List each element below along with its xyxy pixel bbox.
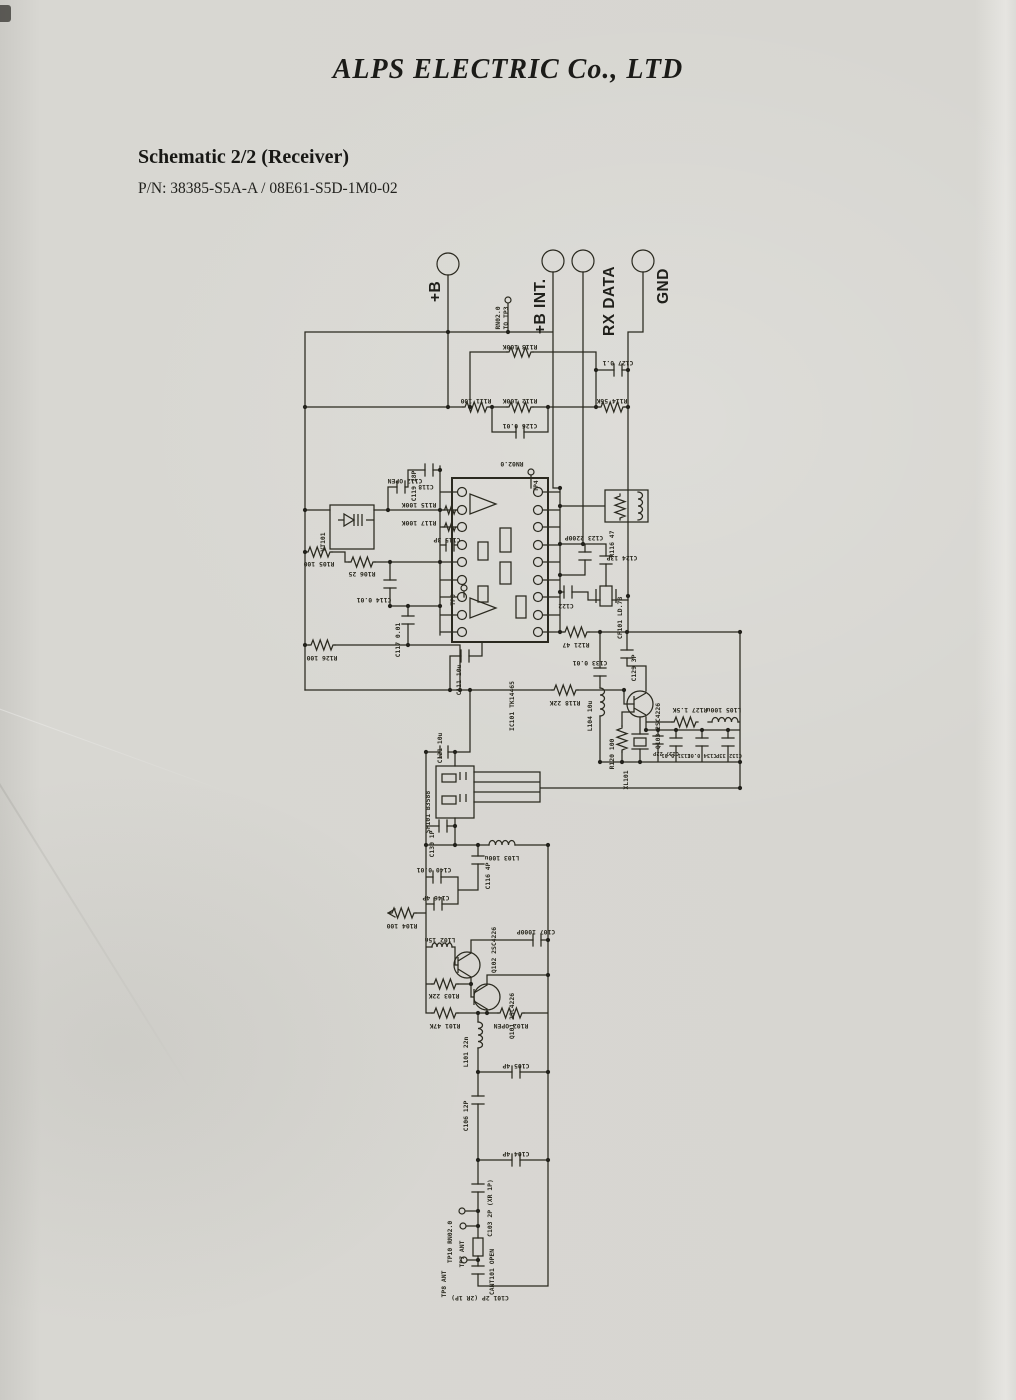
- component-label: L105 100u: [707, 706, 742, 714]
- connector-pads: [437, 250, 654, 275]
- component-label: R115 100K: [402, 501, 437, 509]
- filter-cf101: [596, 586, 616, 606]
- connector-pad-gnd: [632, 250, 654, 272]
- testpoint-label: TP8 ANT: [440, 1270, 448, 1297]
- component-label: C140 0.01: [417, 866, 452, 874]
- component-label: R104 100: [386, 922, 417, 930]
- component-label: R118 22K: [549, 699, 580, 707]
- component-label: L101 22n: [462, 1036, 470, 1067]
- component-label: C103 2P (XR 1P): [486, 1179, 494, 1237]
- connector-pad-rx-data: [572, 250, 594, 272]
- component-label: R112 100K: [503, 397, 538, 405]
- crystal-label: XL101: [622, 770, 630, 789]
- junction-dots: [303, 330, 742, 1262]
- testpoint-pads: [459, 297, 534, 1263]
- component-label: R101 47K: [429, 1022, 460, 1030]
- component-label: C114 0.01: [357, 596, 392, 604]
- connector-pad-b-int: [542, 250, 564, 272]
- crystal-xl101: [634, 738, 646, 746]
- component-label: R116 47: [608, 530, 616, 557]
- component-label: C115 3P: [433, 536, 460, 544]
- wires-ic-left: [305, 466, 531, 690]
- component-label: C111 10u: [455, 664, 463, 695]
- ic-label: IC101 TK14465: [508, 681, 516, 731]
- component-label: C134 0.01: [687, 752, 716, 758]
- component-label: C105 4P: [502, 1062, 529, 1070]
- component-label: C130 1P: [428, 830, 436, 857]
- component-label: C121 10u: [436, 732, 444, 763]
- component-label: C104 4P: [502, 1150, 529, 1158]
- resistor-zigzags: [306, 347, 698, 1018]
- wires-top: [305, 272, 643, 690]
- component-label: L104 10u: [586, 700, 594, 731]
- component-label: R103 22K: [428, 992, 459, 1000]
- component-label: VT101: [319, 532, 327, 551]
- connector-label-b-int: +B INT.: [532, 278, 549, 334]
- component-label: C146 4P: [422, 894, 449, 902]
- antenna-cant101: [473, 1238, 483, 1256]
- testpoint-label: TP7 ANT: [458, 1240, 466, 1267]
- component-label: C129 3P: [630, 654, 638, 681]
- component-label: R105 100: [303, 560, 334, 568]
- component-label: C127 0.1: [602, 359, 633, 367]
- ic101-body: [452, 478, 548, 642]
- filter-sf101: [436, 766, 474, 818]
- component-label: C107 1000P: [517, 928, 556, 936]
- component-label: L102 15n: [424, 936, 455, 944]
- testpoint-label: TP10 RN02.0: [446, 1221, 454, 1263]
- transistor-q102: [454, 952, 480, 978]
- component-label: CF101 LD.7B: [616, 597, 624, 639]
- note-label: RN02.0: [494, 306, 502, 329]
- testpoint-label: TP4: [532, 480, 540, 492]
- component-label: C133 0.01: [573, 659, 608, 667]
- component-label: R120 100: [608, 738, 616, 769]
- component-label: R126 100: [306, 654, 337, 662]
- component-label: C126 0.01: [503, 422, 538, 430]
- component-label: R121 47: [562, 641, 589, 649]
- component-label: C124 13P: [606, 554, 637, 562]
- component-label: R114 56K: [596, 397, 627, 405]
- component-label: R127 1.5K: [673, 706, 708, 714]
- wires-ic-right: [305, 488, 740, 788]
- component-label: C118: [418, 483, 434, 491]
- component-label: C106 12P: [462, 1100, 470, 1131]
- component-label: C132 33P: [715, 752, 742, 758]
- connector-pad-b: [437, 253, 459, 275]
- connector-label-b: +B: [427, 281, 444, 302]
- transistor-label: Q103 2SC4226: [654, 703, 662, 749]
- component-label: C122: [558, 602, 574, 610]
- transistor-label: Q101 2SC4226: [508, 993, 516, 1039]
- connector-label-rx-data: RX DATA: [601, 266, 618, 336]
- testpoint-label: TP6: [449, 594, 457, 606]
- component-labels: R113 100K R111 100 R112 100K R114 56K C1…: [303, 306, 742, 1302]
- capacitor-plates: [384, 364, 734, 1274]
- component-label: C123 2200P: [565, 534, 604, 542]
- antenna-label: CANT101 OPEN: [488, 1249, 496, 1295]
- component-label: R106 25: [348, 570, 375, 578]
- transistor-q101: [474, 984, 500, 1010]
- filter-label: SF101 B3588: [424, 791, 432, 833]
- scanned-schematic-page: ALPS ELECTRIC Co., LTD Schematic 2/2 (Re…: [0, 0, 1016, 1400]
- component-label: C131 0.01: [661, 752, 690, 758]
- component-label: R111 100: [460, 397, 491, 405]
- transistor-label: Q102 2SC4226: [490, 927, 498, 973]
- connector-labels: +B +B INT. RX DATA GND: [427, 266, 672, 336]
- schematic-diagram: +B +B INT. RX DATA GND: [0, 0, 1016, 1400]
- component-label: C117 0.01: [394, 623, 402, 658]
- varactor-vt101: [330, 505, 374, 549]
- note-label: TO TP3: [502, 306, 510, 329]
- component-label: RN02.0: [500, 460, 523, 468]
- component-label: C101 2P (2R 1P): [451, 1294, 509, 1302]
- component-label: C119 18P: [410, 470, 418, 501]
- connector-label-gnd: GND: [655, 268, 672, 304]
- component-label: L103 100u: [485, 854, 520, 862]
- component-label: R117 100K: [402, 519, 437, 527]
- component-label: C116 4P: [484, 862, 492, 889]
- component-label: R113 100K: [503, 343, 538, 351]
- component-label: R102 OPEN: [494, 1022, 529, 1030]
